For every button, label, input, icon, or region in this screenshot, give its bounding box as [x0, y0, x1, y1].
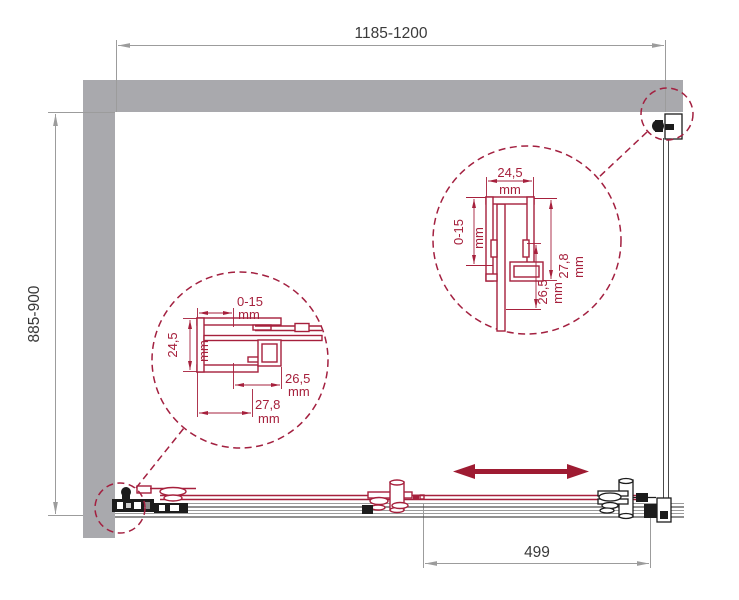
detail-left-outer-value: 27,8 — [255, 397, 280, 412]
detail-left-outer-unit: mm — [258, 411, 280, 426]
detail-right-profile: 24,5 mm 0-15 mm 27,8 mm 26,5 mm — [451, 165, 586, 331]
leader-right — [598, 132, 647, 178]
detail-right-width-value: 24,5 — [497, 165, 522, 180]
detail-left-dim-outer: 27,8 mm — [198, 372, 281, 426]
detail-right-outer-value: 27,8 — [556, 253, 571, 278]
detail-right-inner-unit: mm — [550, 282, 565, 304]
dimension-door-width: 499 — [424, 503, 651, 568]
right-corner-connector — [644, 498, 671, 522]
detail-right-outer-unit: mm — [571, 256, 586, 278]
left-wall — [83, 80, 115, 538]
detail-left-width-unit: mm — [196, 340, 211, 362]
top-wall — [83, 80, 683, 112]
detail-right-adjust-unit: mm — [471, 227, 486, 249]
middle-roller-carriage — [362, 480, 424, 514]
detail-right-adjust-value: 0-15 — [451, 219, 466, 245]
door-stopper — [413, 495, 419, 500]
dim-depth-label: 885-900 — [26, 285, 43, 342]
detail-left-width-value: 24,5 — [165, 332, 180, 357]
drawing-svg: 1185-1200 885-900 499 — [0, 0, 739, 600]
leader-left — [136, 428, 184, 488]
fixed-glass-panel — [664, 138, 669, 505]
top-wall-connector — [652, 114, 682, 139]
detail-right-dim-width: 24,5 mm — [487, 165, 534, 197]
slide-direction-arrow-icon — [453, 464, 589, 479]
dim-width-label: 1185-1200 — [355, 25, 428, 42]
detail-left-profile: 0-15 mm 24,5 mm 26,5 mm 27,8 mm — [165, 294, 322, 426]
walls — [83, 80, 683, 538]
detail-right-inner-value: 26,5 — [535, 279, 550, 304]
dim-door-label: 499 — [524, 544, 550, 561]
detail-left-inner-unit: mm — [288, 384, 310, 399]
detail-callouts — [95, 88, 693, 533]
detail-right-width-unit: mm — [499, 182, 521, 197]
detail-left-adjust-unit: mm — [238, 307, 260, 322]
technical-drawing-canvas: 1185-1200 885-900 499 — [0, 0, 739, 600]
